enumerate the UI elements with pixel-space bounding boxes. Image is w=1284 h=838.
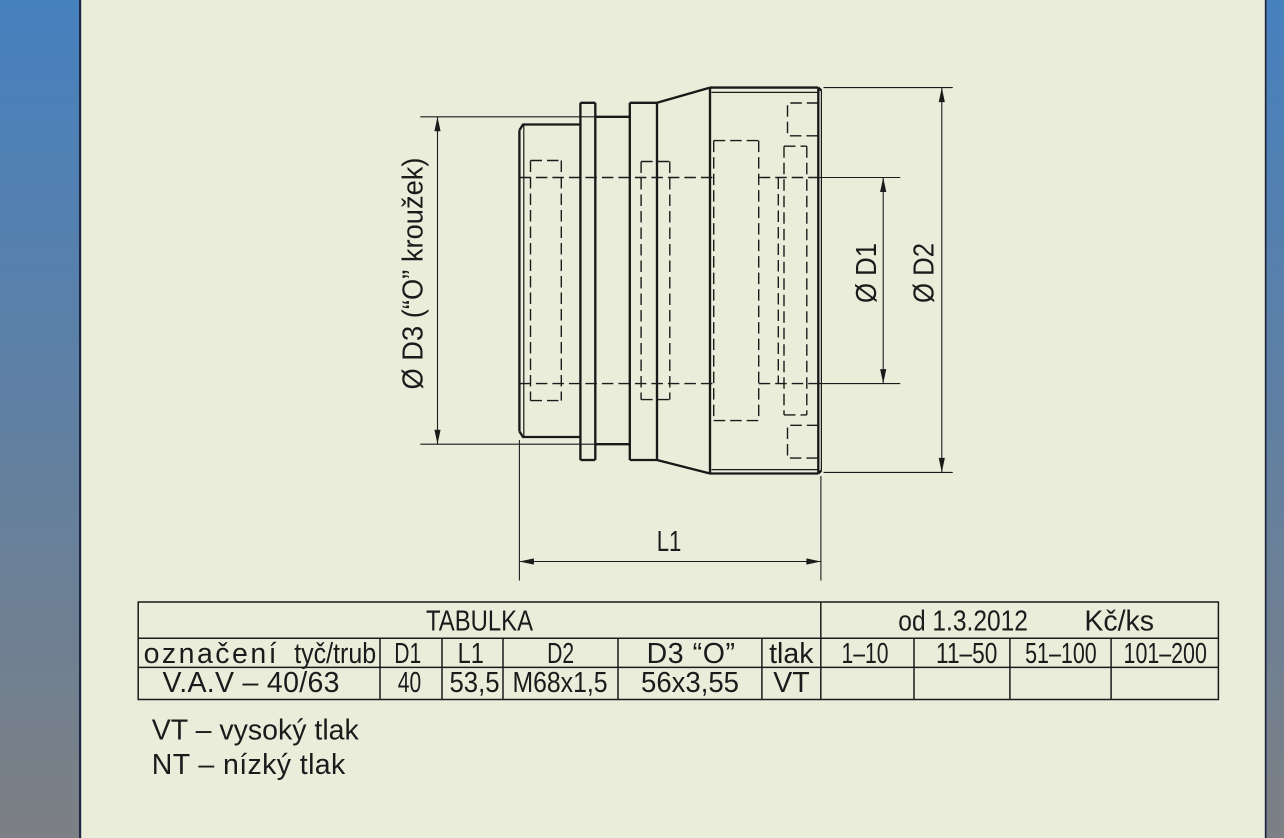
- svg-text:Kč/ks: Kč/ks: [1084, 606, 1154, 638]
- svg-text:53,5: 53,5: [450, 667, 500, 699]
- svg-text:tyč/trub: tyč/trub: [294, 638, 376, 670]
- svg-text:101–200: 101–200: [1124, 638, 1207, 670]
- svg-text:40: 40: [398, 667, 421, 699]
- svg-text:Ø D1: Ø D1: [851, 243, 883, 303]
- svg-text:D3 “O”: D3 “O”: [647, 638, 735, 670]
- svg-text:56x3,55: 56x3,55: [641, 667, 739, 699]
- svg-text:L1: L1: [657, 526, 682, 558]
- svg-text:VT: VT: [773, 667, 809, 699]
- svg-text:11–50: 11–50: [936, 638, 997, 670]
- svg-text:L1: L1: [458, 638, 484, 670]
- svg-text:TABULKA: TABULKA: [426, 606, 533, 638]
- svg-text:M68x1,5: M68x1,5: [513, 667, 608, 699]
- svg-text:D2: D2: [547, 638, 574, 670]
- svg-text:Ø D2: Ø D2: [909, 243, 941, 303]
- svg-text:D1: D1: [394, 638, 421, 670]
- svg-text:51–100: 51–100: [1025, 638, 1097, 670]
- svg-text:Ø D3 (“O” kroužek): Ø D3 (“O” kroužek): [398, 158, 430, 390]
- svg-text:tlak: tlak: [769, 638, 814, 670]
- svg-text:NT – nízký tlak: NT – nízký tlak: [152, 749, 346, 781]
- svg-text:od 1.3.2012: od 1.3.2012: [898, 606, 1028, 638]
- svg-text:V.A.V – 40/63: V.A.V – 40/63: [163, 667, 340, 699]
- svg-text:VT – vysoký tlak: VT – vysoký tlak: [152, 715, 360, 747]
- svg-text:1–10: 1–10: [842, 638, 889, 670]
- svg-text:označení: označení: [144, 638, 277, 670]
